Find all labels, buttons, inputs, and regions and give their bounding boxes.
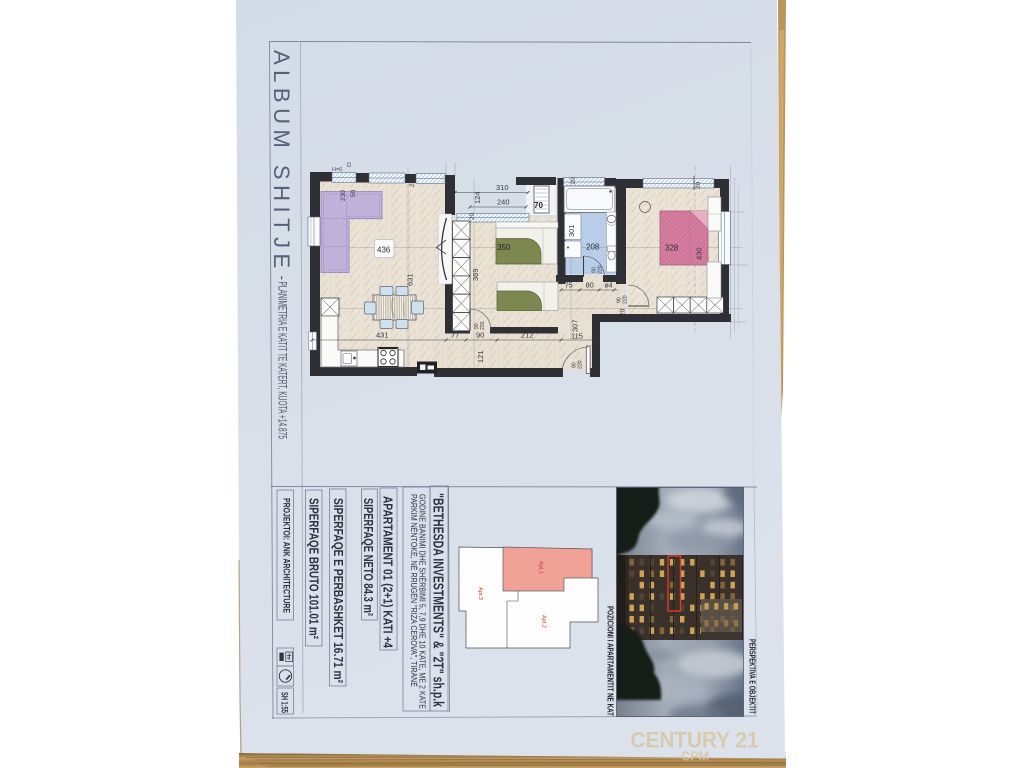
svg-text:80: 80 [586, 281, 594, 290]
svg-text:328: 328 [665, 244, 679, 253]
svg-text:240: 240 [497, 198, 510, 207]
svg-text:20: 20 [695, 181, 702, 189]
svg-text:Apt.2: Apt.2 [541, 615, 547, 628]
svg-text:230: 230 [340, 190, 347, 201]
svg-text:208: 208 [586, 243, 600, 252]
svg-text:301: 301 [567, 224, 576, 237]
svg-text:SH 1:55: SH 1:55 [279, 692, 290, 713]
svg-text:310: 310 [496, 183, 509, 192]
svg-text:431: 431 [376, 331, 389, 340]
svg-text:ø4: ø4 [605, 283, 613, 290]
svg-text:369: 369 [471, 268, 480, 281]
svg-text:PARKIM NËNTOKË, NË RRUGËN "RI: PARKIM NËNTOKË, NË RRUGËN "RIZA CEROVA",… [409, 494, 418, 687]
svg-text:436: 436 [377, 246, 391, 255]
svg-text:ALBUM SHITJE: ALBUM SHITJE [269, 50, 294, 274]
svg-text:220: 220 [578, 360, 584, 369]
svg-text:20: 20 [409, 179, 416, 187]
svg-text:CPM: CPM [681, 750, 709, 764]
svg-text:20: 20 [469, 212, 476, 220]
svg-text:212: 212 [521, 331, 534, 340]
svg-text:50: 50 [350, 189, 357, 197]
svg-text:– PLANIMETRIA E KATIT TE KATER: – PLANIMETRIA E KATIT TE KATERT, KUOTA +… [276, 276, 288, 439]
svg-text:90: 90 [476, 331, 484, 340]
svg-text:SIPERFAQE E PERBASHKET 16.71 m: SIPERFAQE E PERBASHKET 16.71 m² [331, 498, 345, 683]
svg-text:430: 430 [695, 247, 704, 260]
svg-text:220: 220 [598, 265, 604, 274]
svg-text:121: 121 [476, 350, 485, 363]
svg-text:SIPERFAQE NETO 84.3 m²: SIPERFAQE NETO 84.3 m² [361, 498, 375, 616]
svg-text:77: 77 [451, 331, 459, 340]
svg-text:SIPERFAQE BRUTO 101.01 m²: SIPERFAQE BRUTO 101.01 m² [307, 498, 321, 639]
svg-text:Apt.1: Apt.1 [538, 561, 544, 574]
svg-text:H=0: H=0 [332, 167, 342, 173]
svg-text:124: 124 [473, 191, 482, 204]
svg-text:70: 70 [534, 201, 543, 210]
svg-text:D: D [347, 163, 352, 169]
svg-text:350: 350 [497, 243, 511, 252]
svg-text:POZICIONI I APARTAMENTIT NE KA: POZICIONI I APARTAMENTIT NE KAT [606, 606, 615, 716]
svg-text:631: 631 [406, 273, 415, 286]
svg-text:PERSPEKTIVA E OBJEKTIT: PERSPEKTIVA E OBJEKTIT [748, 639, 757, 714]
svg-text:20: 20 [570, 177, 577, 185]
svg-text:20: 20 [618, 276, 625, 284]
svg-text:APARTAMENT 01 (2+1) KATI +4: APARTAMENT 01 (2+1) KATI +4 [381, 496, 395, 648]
svg-text:20: 20 [620, 308, 627, 316]
svg-text:Apt.3: Apt.3 [477, 587, 483, 600]
svg-text:75: 75 [565, 281, 573, 290]
svg-text:220: 220 [480, 321, 486, 330]
svg-text:307: 307 [571, 319, 580, 332]
svg-text:"BETHESDA INVESTMENTS" & "2T": "BETHESDA INVESTMENTS" & "2T" sh.p.k [430, 493, 446, 708]
svg-text:PROJEKTOI: ANK ARCHITECTURE: PROJEKTOI: ANK ARCHITECTURE [282, 498, 292, 613]
svg-text:220: 220 [623, 295, 629, 304]
